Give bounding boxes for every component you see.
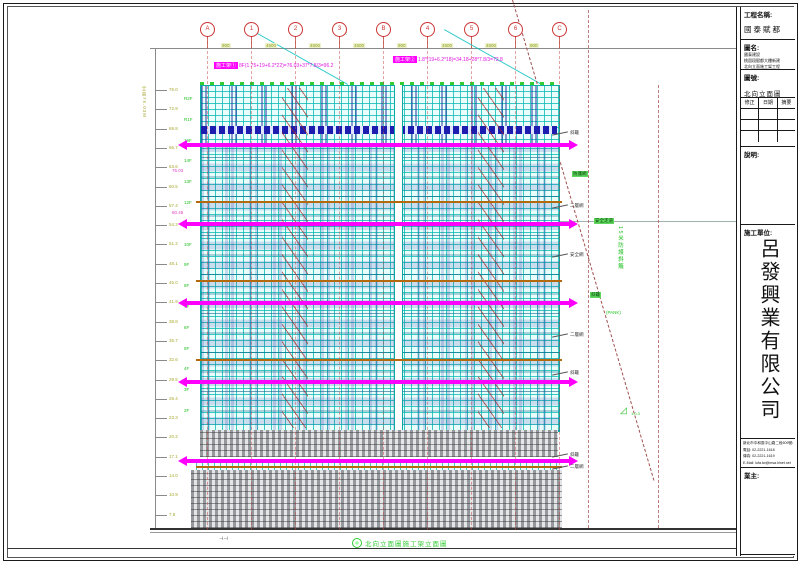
project-section: 工程名稱: 國泰賦都	[741, 7, 795, 40]
overall-height-note: 全高76.03M	[141, 86, 147, 118]
level-label: 20.2	[169, 434, 178, 439]
grid-bubble: 3	[332, 22, 347, 37]
floor-label: 9F	[184, 262, 189, 267]
notes-label: 說明:	[744, 149, 792, 159]
ruler-tick	[155, 380, 167, 381]
scaffold-formula-left: 施工架①8F(1.75+19+6.2*22)=76.03+37*7.8/3=96…	[214, 62, 333, 69]
dimension-label: 900	[221, 43, 231, 48]
contractor-section: 施工單位:	[741, 225, 795, 238]
level-pink-label: 60.45	[172, 210, 183, 215]
level-label: 23.3	[169, 415, 178, 420]
safety-catch-platform	[182, 380, 574, 384]
ruler-tick	[155, 476, 167, 477]
boundary-dashed-line	[588, 10, 589, 528]
revision-header: 修正	[741, 98, 759, 108]
ruler-tick	[155, 90, 167, 91]
level-label: 32.6	[169, 357, 178, 362]
mesh-screen-podium	[191, 470, 562, 528]
ruler-tick	[155, 148, 167, 149]
contractor-name-block: 呂發興業有限公司	[741, 238, 795, 438]
boundary-dashed-line	[658, 85, 659, 528]
dimension-label: 4500	[309, 43, 321, 48]
drawing-no-label: 圖號:	[744, 72, 792, 82]
floor-label: 10F	[184, 242, 192, 247]
ruler-tick	[155, 495, 167, 496]
ground-line	[150, 528, 738, 530]
floor-label: 8F	[184, 283, 189, 288]
tie-beam-line	[196, 201, 562, 203]
drawing-name-section: 圖名: 國泰建設 桃園段賦都大樓新建 北向立面施工架工程	[741, 40, 795, 70]
ruler-tick	[155, 302, 167, 303]
tie-beam-line	[196, 466, 562, 468]
grid-axis-line	[207, 36, 208, 530]
ground-line-secondary	[150, 532, 738, 533]
ruler-tick	[155, 437, 167, 438]
grid-axis-line	[383, 36, 384, 530]
green-annotation-label: 斜籬	[590, 292, 601, 298]
floor-label: 14F	[184, 158, 192, 163]
revision-row	[741, 120, 795, 131]
grid-bubble: C	[552, 22, 567, 37]
drawing-name-label: 圖名:	[744, 42, 792, 52]
bottom-strip-divider	[7, 548, 737, 549]
contractor-label: 施工單位:	[744, 227, 792, 237]
dimension-label: 900	[529, 43, 539, 48]
grid-bubble: 6	[508, 22, 523, 37]
title-block-inner: 工程名稱: 國泰賦都 圖名: 國泰建設 桃園段賦都大樓新建 北向立面施工架工程 …	[740, 7, 795, 556]
grid-bubble: A	[200, 22, 215, 37]
ruler-tick	[155, 457, 167, 458]
safety-catch-platform	[182, 459, 574, 463]
level-label: 60.5	[169, 184, 178, 189]
dimension-label: 4500	[485, 43, 497, 48]
parapet-ticks	[200, 82, 558, 85]
level-label: 26.4	[169, 396, 178, 401]
level-pink-label: 76.03	[172, 168, 183, 173]
formula-text: 1.8*(19+6.2*18)=34.18+28*7.8/3=72.8	[418, 57, 503, 63]
floor-label: R2F	[184, 96, 193, 101]
protective-canopy-suffix: (PANK)	[606, 310, 621, 315]
annotation-label: 斜籬	[570, 370, 579, 376]
grid-bubble: 1	[244, 22, 259, 37]
title-block: 工程名稱: 國泰賦都 圖名: 國泰建設 桃園段賦都大樓新建 北向立面施工架工程 …	[736, 7, 795, 556]
owner-section: 業主:	[741, 467, 795, 555]
contact-line: 新北市中和區中山路二段609號4樓	[743, 440, 793, 447]
reference-line	[558, 221, 738, 222]
tie-beam-line	[196, 280, 562, 282]
contractor-company-name: 呂發興業有限公司	[758, 238, 778, 438]
ruler-tick	[155, 225, 167, 226]
owner-label: 業主:	[744, 470, 792, 480]
ground-note: ⊣⊣	[219, 536, 228, 542]
ruler-tick	[155, 322, 167, 323]
green-annotation-label: 安全走道	[594, 218, 614, 224]
safety-catch-platform	[182, 301, 574, 305]
facade-typical-floors	[200, 145, 560, 432]
scaffold-stair-right	[478, 88, 504, 428]
project-name: 國泰賦都	[744, 24, 792, 35]
ruler-tick	[155, 244, 167, 245]
ruler-tick	[155, 360, 167, 361]
grid-axis-line	[427, 36, 428, 530]
floor-label: 6F	[184, 325, 189, 330]
ruler-tick	[155, 515, 167, 516]
revision-header: 摘要	[778, 98, 795, 108]
ruler-tick	[155, 399, 167, 400]
slope-label: 1:0.3	[631, 411, 640, 416]
ruler-tick	[155, 129, 167, 130]
formula-text: 8F(1.75+19+6.2*22)=76.03+37*7.8/3=96.2	[239, 63, 333, 69]
ruler-tick	[155, 109, 167, 110]
grid-bubble: 5	[464, 22, 479, 37]
drawing-sheet: A123B456C90045004500450090045004500900 全…	[0, 0, 800, 563]
safety-catch-platform	[182, 143, 574, 147]
level-label: 76.0	[169, 87, 178, 92]
revision-row	[741, 109, 795, 120]
annotation-label: 二層網	[570, 203, 584, 209]
level-label: 14.0	[169, 473, 178, 478]
annotation-label: 斜籬	[570, 452, 579, 458]
ruler-tick	[155, 187, 167, 188]
ruler-tick	[155, 341, 167, 342]
dimension-line	[150, 48, 738, 49]
level-label: 51.2	[169, 241, 178, 246]
grid-bubble: 4	[420, 22, 435, 37]
mesh-screen-upper	[200, 430, 558, 457]
level-label: 48.1	[169, 261, 178, 266]
ruler-tick	[155, 283, 167, 284]
level-label: 10.9	[169, 492, 178, 497]
level-label: 69.8	[169, 126, 178, 131]
level-label: 7.8	[169, 512, 175, 517]
project-label: 工程名稱:	[744, 9, 792, 19]
floor-label: 2F	[184, 408, 189, 413]
floor-label: 4F	[184, 366, 189, 371]
grid-axis-line	[295, 36, 296, 530]
revision-header: 日期	[759, 98, 777, 108]
grid-axis-line	[471, 36, 472, 530]
dimension-label: 4500	[353, 43, 365, 48]
scaffold-formula-right: 施工架②1.8*(19+6.2*18)=34.18+28*7.8/3=72.8	[393, 56, 503, 63]
annotation-label: 二層網	[570, 332, 584, 338]
floor-label: 12F	[184, 200, 192, 205]
facade-roof-levels	[200, 85, 560, 147]
dimension-label: 4500	[265, 43, 277, 48]
contact-line: E-Mail: lufa.tw@msa.hinet.net	[743, 460, 793, 467]
ruler-tick	[155, 167, 167, 168]
north-elevation-stamp-icon	[352, 538, 362, 548]
revision-table: 修正 日期 摘要	[741, 98, 795, 147]
dimension-label: 900	[397, 43, 407, 48]
floor-label: R1F	[184, 117, 193, 122]
grid-axis-line	[251, 36, 252, 530]
notes-section: 說明:	[741, 147, 795, 225]
floor-label: 5F	[184, 346, 189, 351]
tower-expansion-gap	[394, 85, 403, 430]
level-label: 57.4	[169, 203, 178, 208]
formula-tag: 施工架①	[214, 62, 238, 69]
level-label: 72.9	[169, 106, 178, 111]
annotation-label: 斜籬	[570, 130, 579, 136]
revision-row	[741, 131, 795, 142]
drawing-no: 北向立面圖	[744, 88, 792, 98]
drawing-title-stamp: 北向立面圖施工架立面圖	[352, 538, 448, 548]
level-label: 35.7	[169, 338, 178, 343]
green-annotation-label: 防護網	[572, 171, 588, 177]
level-label: 45.0	[169, 280, 178, 285]
contractor-contact: 新北市中和區中山路二段609號4樓 電話: 02-2221-1618 傳真: 0…	[741, 438, 795, 467]
annotation-label: 二層網	[570, 464, 584, 470]
floor-label: 13F	[184, 179, 192, 184]
ruler-tick	[155, 206, 167, 207]
protective-canopy-note: 15米防護斜籬	[616, 226, 624, 270]
revision-header-row: 修正 日期 摘要	[741, 98, 795, 109]
level-label: 38.8	[169, 319, 178, 324]
slope-indicator-icon: ◿	[620, 405, 627, 416]
floor-label: 3F	[184, 387, 189, 392]
stamp-text: 北向立面圖施工架立面圖	[365, 538, 448, 548]
safety-catch-platform	[182, 222, 574, 226]
grid-axis-line	[339, 36, 340, 530]
dimension-label: 4500	[441, 43, 453, 48]
drawing-no-section: 圖號: 北向立面圖	[741, 70, 795, 98]
grid-bubble: 2	[288, 22, 303, 37]
tie-beam-line	[196, 359, 562, 361]
annotation-label: 安全網	[570, 252, 584, 258]
grid-axis-line	[515, 36, 516, 530]
ruler-tick	[155, 418, 167, 419]
grid-bubble: B	[376, 22, 391, 37]
ruler-tick	[155, 264, 167, 265]
formula-tag: 施工架②	[393, 56, 417, 63]
